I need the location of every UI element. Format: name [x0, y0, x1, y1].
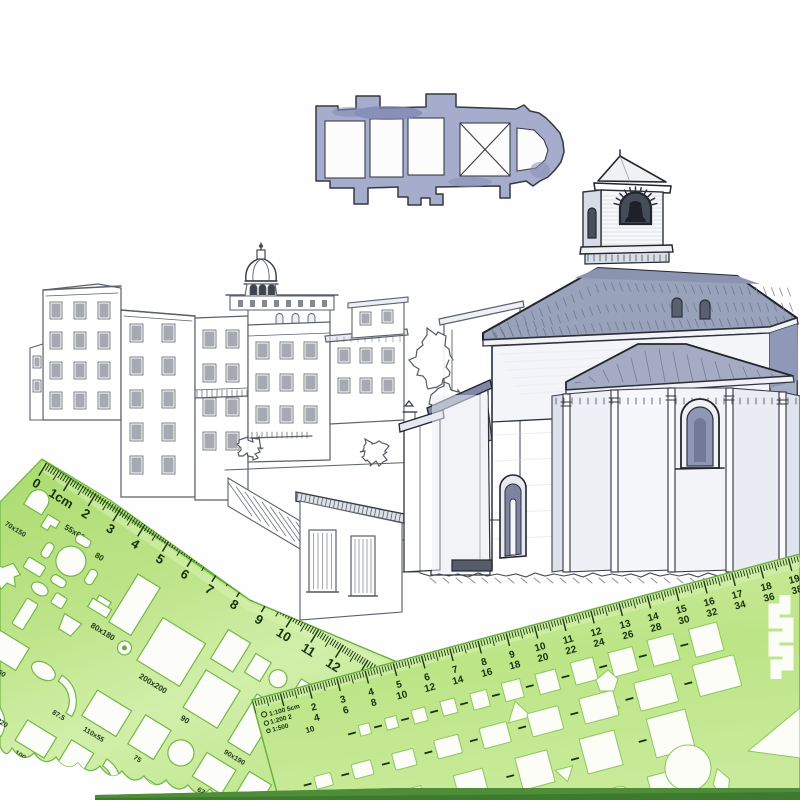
svg-text:38: 38: [790, 584, 800, 598]
